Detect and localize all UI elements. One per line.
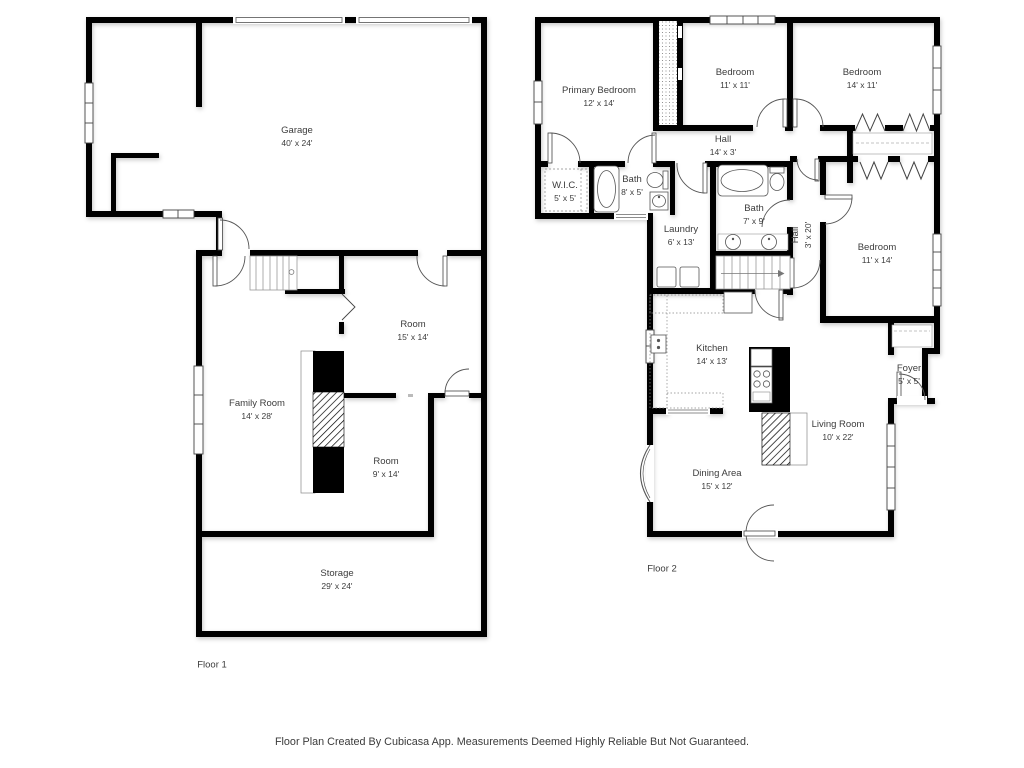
wic-shelf-icon	[545, 169, 587, 211]
bathtub-icon	[718, 165, 768, 196]
floor2-plan	[534, 16, 941, 561]
footer-disclaimer: Floor Plan Created By Cubicasa App. Meas…	[0, 736, 1024, 748]
vanity-sinks-icon	[718, 234, 788, 250]
bathtub-icon	[594, 166, 619, 212]
floor1-walls	[86, 17, 487, 637]
refrigerator-icon	[724, 292, 752, 313]
toilet-icon	[647, 171, 668, 189]
window-icon	[85, 83, 203, 454]
toilet-icon	[770, 167, 784, 191]
dryer-icon	[680, 267, 699, 287]
fireplace-icon	[762, 413, 807, 465]
fireplace-icon	[301, 351, 344, 493]
staircase-icon	[716, 256, 790, 289]
closet-rod-icon	[853, 133, 932, 347]
stove-icon	[749, 347, 790, 412]
floor-plan-drawing	[0, 0, 1024, 768]
bay-window-icon	[641, 445, 655, 502]
floor-plan-page: Floor 1Garage40' x 24'Room15' x 14'Famil…	[0, 0, 1024, 768]
kitchen-sink-icon	[651, 335, 666, 353]
pass-through-icon	[614, 212, 710, 415]
floor1-plan	[85, 16, 487, 637]
staircase-icon	[250, 256, 297, 290]
sink-icon	[650, 192, 668, 210]
patio-door-icon	[742, 505, 778, 561]
washer-icon	[657, 267, 676, 287]
